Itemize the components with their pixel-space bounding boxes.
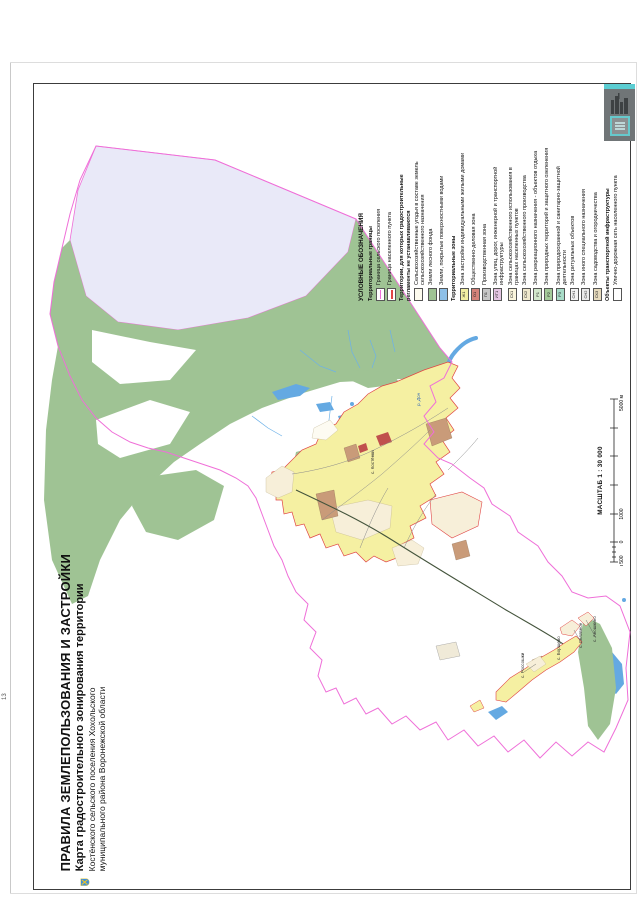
legend-item: Р2Зона природных территорий и защитного … xyxy=(544,143,553,301)
legend-swatch xyxy=(613,288,622,301)
legend-label: Зона сельскохозяйственного производства xyxy=(522,143,528,285)
map-place-label: с. Селявное xyxy=(578,622,583,648)
legend-label: Земли, покрытые поверхностными водами xyxy=(439,143,445,285)
legend-item: СХ3Зона садоводства и огородничества xyxy=(593,143,602,301)
legend-swatch xyxy=(439,288,448,301)
map-lake xyxy=(622,598,626,602)
legend-swatch: Р3 xyxy=(556,288,565,301)
legend-swatch: О1 xyxy=(471,288,480,301)
legend-swatch: Р1 xyxy=(533,288,542,301)
coat-of-arms xyxy=(62,878,108,886)
map-subtitle-2: муниципального района Воронежской област… xyxy=(97,554,108,871)
map-title: Карта градостроительного зонирования тер… xyxy=(74,554,87,871)
legend-label: Зона ритуальных объектов xyxy=(570,143,576,285)
scale-caption: МАСШТАБ 1 : 30 000 xyxy=(597,395,604,566)
legend-section-header: Территориальные зоны xyxy=(451,143,457,301)
map-forest-patch xyxy=(132,470,224,540)
legend-section-header: Объекты транспортной инфраструктуры xyxy=(605,143,611,301)
legend-label: Зона сельскохозяйственного использования… xyxy=(508,143,520,285)
map-place-label: с. Аношкино xyxy=(592,616,597,642)
legend-swatch xyxy=(428,288,437,301)
legend-swatch xyxy=(414,288,423,301)
legend: УСЛОВНЫЕ ОБОЗНАЧЕНИЯ Территориальные гра… xyxy=(358,143,604,301)
legend-label: Зона улиц, дорог, инженерной и транспорт… xyxy=(493,143,505,285)
legend-swatch: СХ3 xyxy=(593,288,602,301)
map-subtitle-1: Костёнского сельского поселения Хохольск… xyxy=(87,554,98,871)
scale-label-start: м 500 xyxy=(619,555,624,566)
legend-label: Общественно-деловая зона xyxy=(471,143,477,285)
map-lake xyxy=(350,402,354,406)
legend-label: Зона рекреационного назначения - объекто… xyxy=(533,143,539,285)
title-text: ПРАВИЛА ЗЕМЛЕПОЛЬЗОВАНИЯ И ЗАСТРОЙКИ Кар… xyxy=(59,554,108,871)
legend-item: П1Производственная зона xyxy=(482,143,491,301)
legend-item: СН2Зона иного специального назначения xyxy=(581,143,590,301)
legend-swatch: СХ1 xyxy=(508,288,517,301)
legend-swatch: СН1 xyxy=(570,288,579,301)
legend-item: Ж1Зона застройки индивидуальными жилыми … xyxy=(460,143,469,301)
legend-label: Улично-дорожная сеть населенного пункта xyxy=(613,143,619,285)
legend-swatch xyxy=(376,288,385,301)
legend-items: Территориальные границыГраница сельского… xyxy=(368,143,622,301)
legend-swatch xyxy=(387,288,396,301)
legend-swatch: СН2 xyxy=(581,288,590,301)
title-block: ПРАВИЛА ЗЕМЛЕПОЛЬЗОВАНИЯ И ЗАСТРОЙКИ Кар… xyxy=(52,554,108,886)
legend-item: Граница сельского поселения xyxy=(376,143,385,301)
legend-item: Граница населенного пункта xyxy=(387,143,396,301)
legend-label: Земли лесного фонда xyxy=(428,143,434,285)
legend-item: СН1Зона ритуальных объектов xyxy=(570,143,579,301)
legend-item: Р3Зона природоохранной и санитарно-защит… xyxy=(556,143,568,301)
legend-label: Зона иного специального назначения xyxy=(581,143,587,285)
legend-label: Производственная зона xyxy=(482,143,488,285)
legend-label: Зона природоохранной и санитарно-защитно… xyxy=(556,143,568,285)
legend-item: Р1Зона рекреационного назначения - объек… xyxy=(533,143,542,301)
map-place-label: с. Россошки xyxy=(520,652,525,678)
legend-item: СХ2Зона сельскохозяйственного производст… xyxy=(522,143,531,301)
legend-label: Сельскохозяйственные угодья в составе зе… xyxy=(414,143,426,285)
legend-swatch: Ж1 xyxy=(460,288,469,301)
map-forest-strip-south xyxy=(578,616,616,740)
scale-label-zero: 0 xyxy=(619,540,624,543)
legend-label: Зона природных территорий и защитного оз… xyxy=(544,143,550,285)
document-title: ПРАВИЛА ЗЕМЛЕПОЛЬЗОВАНИЯ И ЗАСТРОЙКИ xyxy=(59,554,74,871)
logo-body xyxy=(604,89,635,141)
legend-title: УСЛОВНЫЕ ОБОЗНАЧЕНИЯ xyxy=(358,143,365,301)
map-place-label: р. Дон xyxy=(416,392,421,407)
legend-item: ИТ1Зона улиц, дорог, инженерной и трансп… xyxy=(493,143,505,301)
map-cemetery-patch xyxy=(436,642,460,660)
scale-label-5000: 5000 м xyxy=(619,395,624,411)
legend-label: Граница населенного пункта xyxy=(387,143,393,285)
legend-item: Земли лесного фонда xyxy=(428,143,437,301)
legend-item: Улично-дорожная сеть населенного пункта xyxy=(613,143,622,301)
map-zone-residential-borschevo xyxy=(496,636,582,702)
scale-bar: м 500 0 1000 5000 м xyxy=(606,395,624,566)
scale-label-1000: 1000 xyxy=(619,508,624,519)
design-org-logo xyxy=(604,84,635,141)
legend-swatch: СХ2 xyxy=(522,288,531,301)
scale-block: МАСШТАБ 1 : 30 000 м 500 0 1000 5000 м xyxy=(597,395,630,566)
legend-swatch: П1 xyxy=(482,288,491,301)
map-place-label: с. Костёнки xyxy=(370,450,375,474)
map-small-settlement xyxy=(470,700,484,712)
legend-label: Зона садоводства и огородничества xyxy=(593,143,599,285)
legend-item: Сельскохозяйственные угодья в составе зе… xyxy=(414,143,426,301)
legend-section-header: Территориальные границы xyxy=(368,143,374,301)
legend-item: О1Общественно-деловая зона xyxy=(471,143,480,301)
legend-item: СХ1Зона сельскохозяйственного использова… xyxy=(508,143,520,301)
legend-section-header: Территории, для которых градостроительны… xyxy=(399,143,411,301)
legend-label: Граница сельского поселения xyxy=(376,143,382,285)
screenshot-root: { "page_number": "13", "title_block": { … xyxy=(0,0,640,905)
city-skyline-icon xyxy=(608,92,632,114)
map-zone-agr-in-town xyxy=(430,492,482,538)
map-river-don xyxy=(455,338,476,352)
legend-label: Зона застройки индивидуальными жилыми до… xyxy=(460,143,466,285)
legend-item: Земли, покрытые поверхностными водами xyxy=(439,143,448,301)
map-lake xyxy=(488,706,508,720)
legend-swatch: ИТ1 xyxy=(493,288,502,301)
legend-swatch: Р2 xyxy=(544,288,553,301)
document-stamp-icon xyxy=(610,116,630,136)
map-place-label: с. Борщево xyxy=(556,636,561,660)
